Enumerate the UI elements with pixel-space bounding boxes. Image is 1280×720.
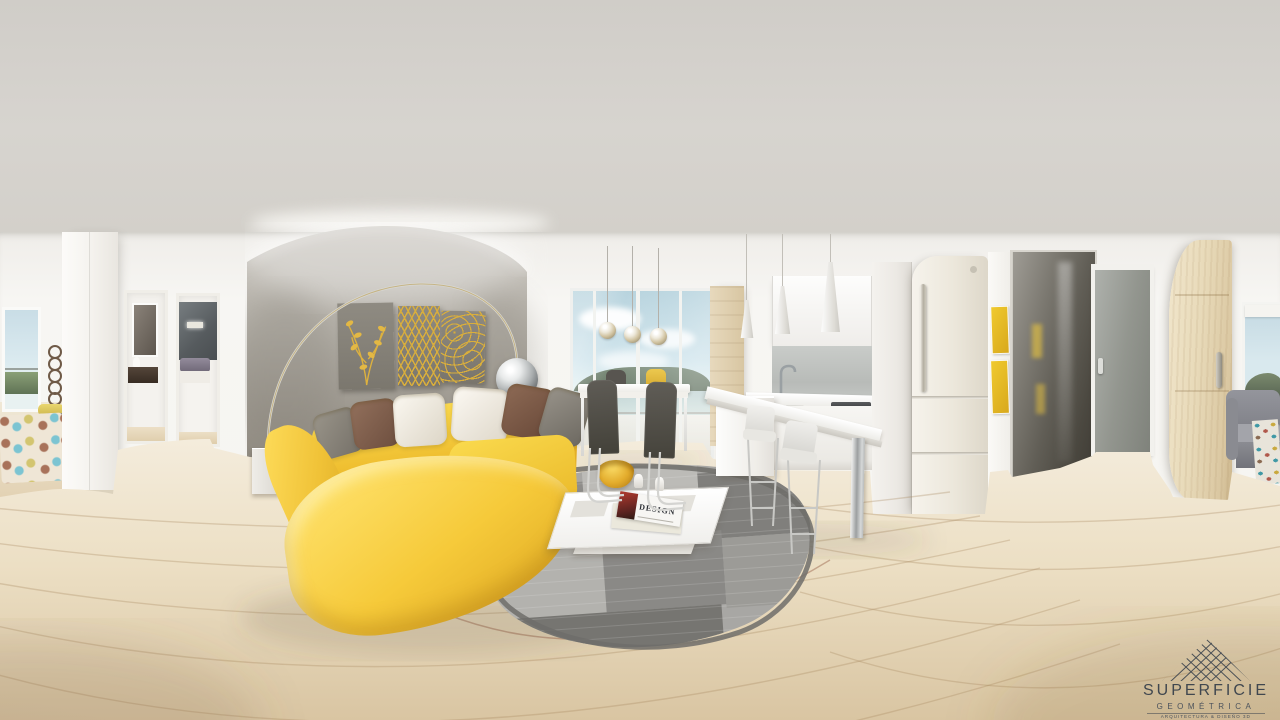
dining-table-leg [684, 397, 687, 451]
fridge-seam [912, 396, 988, 399]
doorway-vanity [124, 290, 168, 444]
mountains [573, 367, 711, 395]
sofa-pillow-white [392, 392, 448, 448]
sofa-right-arm [535, 397, 578, 492]
dining-chair-near [644, 381, 678, 458]
yellow-sofa [260, 370, 600, 640]
door-handle [1098, 358, 1103, 374]
floor-cushion-gray [44, 413, 72, 426]
bedroom-niche-light [187, 322, 203, 328]
coffee-table-top [547, 487, 729, 549]
bar-stool-seat [779, 447, 817, 465]
pillar-corner-edge [89, 232, 90, 494]
vignette-overlay [0, 0, 1280, 720]
water [573, 391, 711, 417]
bar-stool-legs [778, 460, 830, 558]
balcony-floor [573, 415, 711, 455]
coffee-table-shelf [573, 538, 697, 554]
entry-door [1095, 270, 1150, 454]
bar-table-leg-chrome [850, 438, 865, 538]
sofa-armrest [1226, 398, 1238, 460]
balcony-rail [573, 412, 711, 414]
design-magazine: DESIGN [616, 491, 683, 527]
left-window [2, 307, 41, 412]
window-mullion [636, 291, 640, 455]
magazine-title: DESIGN [639, 502, 677, 517]
bar-table-top [704, 386, 882, 442]
wood-door-groove [1175, 390, 1229, 392]
countertop [746, 392, 880, 408]
roof-grid-icon [1160, 636, 1252, 682]
mirror-reflection-yellow [1036, 384, 1045, 414]
sofa-left-arm [252, 413, 370, 570]
fridge-logo-badge [970, 266, 977, 273]
magazine-rule [638, 516, 674, 523]
dining-chair-yellow [646, 369, 666, 387]
dining-table-leg [581, 398, 584, 456]
doorway-bedroom [176, 293, 220, 447]
floor-surface [0, 439, 1280, 720]
dining-shadow [568, 452, 708, 472]
watermark: SUPERFICIE GEOMÉTRICA ARQUITECTURA & DIS… [1134, 636, 1278, 720]
floor-sheen [380, 522, 740, 598]
living-rug [448, 458, 828, 658]
kitchen-island [716, 396, 774, 476]
concrete-wall [245, 222, 557, 464]
yellow-artwork-canvas [991, 361, 1009, 414]
vanity-desk [128, 367, 158, 383]
floor-plank-lines [0, 492, 1280, 720]
sofa-seat [448, 434, 579, 515]
yellow-artwork-canvas [991, 307, 1009, 354]
art-panel-lattice [398, 306, 440, 386]
magazine-under [611, 503, 683, 534]
wood-door-groove [1175, 294, 1229, 296]
panorama-render: DESIGN [0, 0, 1280, 720]
gray-sofa-right [1226, 390, 1280, 470]
pendant-cord [607, 246, 608, 324]
sofa-back [1226, 390, 1280, 434]
sofa-pillow-gray [536, 385, 593, 449]
wood-sliding-door [1169, 240, 1232, 500]
cloud [597, 351, 669, 371]
dining-chair-near [587, 379, 620, 454]
dining-table-apron [580, 392, 688, 398]
kitchen-side-panel [710, 286, 744, 446]
yellow-artwork [990, 360, 1010, 415]
left-rug-circles [0, 412, 66, 483]
pendant-sphere-lamp [599, 322, 616, 339]
dining-table-top [578, 384, 690, 393]
cone-pendant-lamp [774, 286, 791, 334]
pillar-baseboard [62, 490, 118, 494]
dining-table-leg [602, 396, 604, 436]
ceiling-cove-glow [250, 210, 550, 236]
pendant-cord [746, 234, 747, 302]
cloud [579, 307, 641, 331]
rug-border [481, 466, 812, 647]
fridge [912, 256, 988, 516]
base-cabinets [748, 406, 880, 470]
sofa-pillow-brown [349, 397, 401, 451]
cooktop [831, 402, 871, 412]
floor-accent-line [330, 548, 830, 639]
dining-table-leg [668, 396, 670, 434]
cone-pendant-lamp [820, 262, 841, 332]
sofa-chaise [274, 436, 587, 647]
right-window [1242, 302, 1280, 402]
art-panel-circles [440, 311, 485, 384]
bar-stool [782, 420, 819, 459]
bed-blanket [180, 358, 210, 372]
entry-door-frame [1091, 264, 1154, 456]
window-mullion [593, 291, 596, 455]
sofa-pillow-brown [500, 382, 556, 442]
dining-chair-far [606, 370, 626, 388]
sofa-shadow [240, 582, 620, 654]
arc-lamp-chrome-sphere [496, 358, 538, 400]
watermark-tagline: ARQUITECTURA & DISEÑO 3D [1161, 715, 1251, 720]
pendant-cord [632, 246, 633, 328]
fridge-seam [912, 452, 988, 455]
table-shadow [545, 546, 735, 578]
ceiling [0, 0, 1280, 234]
floor-corner-shade [990, 626, 1280, 720]
small-cup [655, 477, 664, 491]
bar-stool-seat [743, 428, 777, 442]
yellow-bowl [598, 460, 634, 488]
placemat [570, 500, 609, 517]
floor-corner-shade [0, 636, 260, 720]
door-handle [1216, 352, 1222, 388]
bar-table-edge [706, 398, 882, 447]
small-cup [634, 474, 643, 488]
arc-lamp-base [252, 448, 282, 494]
pendant-cord [782, 234, 783, 288]
right-rug-dots [1252, 419, 1280, 485]
pendant-cord [830, 234, 831, 264]
dining-glass-wall [570, 288, 714, 458]
bed-base [180, 371, 210, 383]
vanity-floor [127, 427, 165, 441]
window-mullion [679, 291, 682, 455]
pendant-sphere-lamp [624, 326, 641, 343]
right-window-landscape [1245, 373, 1280, 399]
arc-floor-lamp [240, 260, 540, 470]
floor-cushion-yellow [38, 404, 64, 416]
vanity-mirror [132, 303, 158, 357]
mirror-reflection-streak [1058, 262, 1072, 462]
pendant-sphere-lamp [650, 328, 667, 345]
yellow-artwork [990, 306, 1010, 355]
walls [0, 232, 1280, 542]
bar-stool [745, 405, 776, 438]
art-panel-leaves [337, 303, 394, 390]
art-wall [988, 252, 1012, 492]
fridge-handle [920, 284, 926, 392]
glass-reflection [573, 291, 711, 455]
bar-shadow [690, 524, 930, 556]
backsplash [772, 346, 872, 398]
upper-cabinets [772, 276, 872, 346]
cone-pendant-lamp [740, 300, 754, 338]
bedroom-accent-wall [179, 302, 217, 360]
vanity-lamp [133, 357, 140, 367]
watermark-subtitle: GEOMÉTRICA [1157, 702, 1256, 711]
sofa-back-cushion [309, 390, 564, 480]
roller-shade [1245, 305, 1280, 317]
faucet [776, 362, 798, 398]
magazine-cover-photo [616, 491, 638, 519]
sofa-seat [1234, 424, 1280, 444]
bar-stool-legs [740, 438, 786, 530]
tall-cabinet [872, 262, 912, 518]
sofa-pillow-white [450, 386, 510, 444]
dining-table [576, 382, 692, 468]
sofa-pillow-gray [311, 405, 366, 461]
cloud [639, 329, 695, 349]
rug-patchwork [448, 458, 828, 658]
mirror-reflection-yellow [1032, 324, 1042, 358]
left-window-rail [5, 368, 38, 370]
ring-sculpture [45, 344, 65, 408]
chair-cantilever-legs [640, 452, 688, 522]
chair-cantilever-legs [582, 448, 628, 514]
placemat [651, 495, 696, 513]
bedroom-floor [179, 432, 217, 444]
left-pillar [62, 232, 118, 494]
wood-floor [0, 0, 1280, 720]
watermark-brand: SUPERFICIE [1143, 682, 1269, 700]
left-window-landscape [5, 372, 38, 394]
pendant-cord [658, 248, 659, 330]
sofa-base [1236, 442, 1280, 468]
mirror-wardrobe [1010, 250, 1097, 482]
watermark-rule [1147, 713, 1265, 714]
left-room-floor [0, 402, 66, 502]
